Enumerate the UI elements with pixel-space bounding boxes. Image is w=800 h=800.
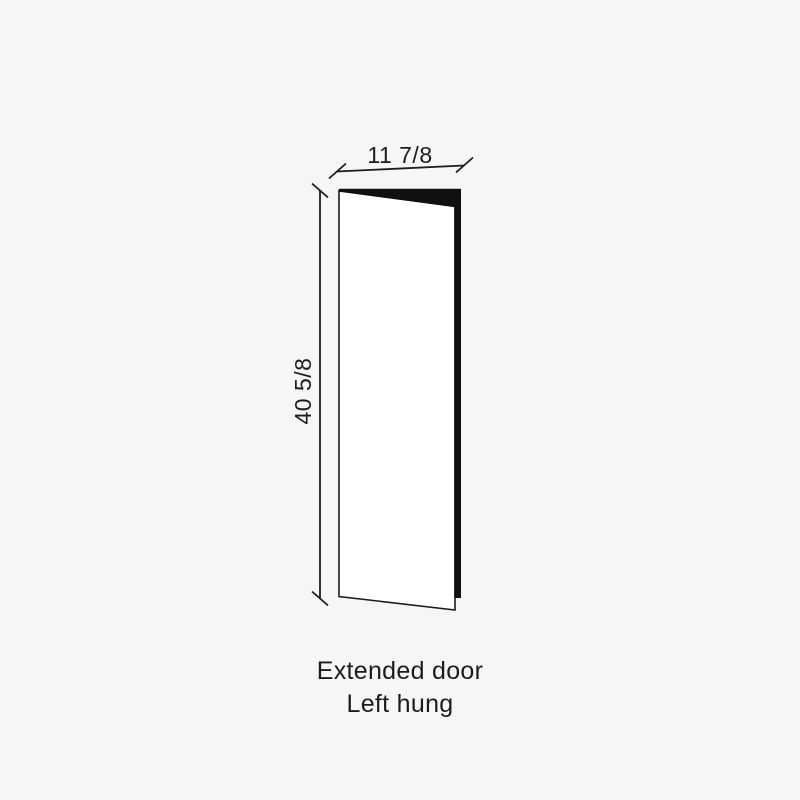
door-front-face — [339, 191, 455, 611]
caption-line-2: Left hung — [347, 690, 454, 718]
door-diagram-canvas: 11 7/8 40 5/8 Extended door Left hung — [0, 0, 800, 800]
door-diagram: 11 7/8 40 5/8 Extended door Left hung — [0, 0, 800, 800]
caption: Extended door Left hung — [317, 657, 484, 718]
height-dimension-label: 40 5/8 — [290, 358, 316, 425]
caption-line-1: Extended door — [317, 657, 484, 685]
height-dimension: 40 5/8 — [290, 184, 328, 606]
door — [339, 189, 461, 610]
width-dimension-label: 11 7/8 — [367, 142, 432, 168]
width-dimension: 11 7/8 — [329, 142, 473, 179]
